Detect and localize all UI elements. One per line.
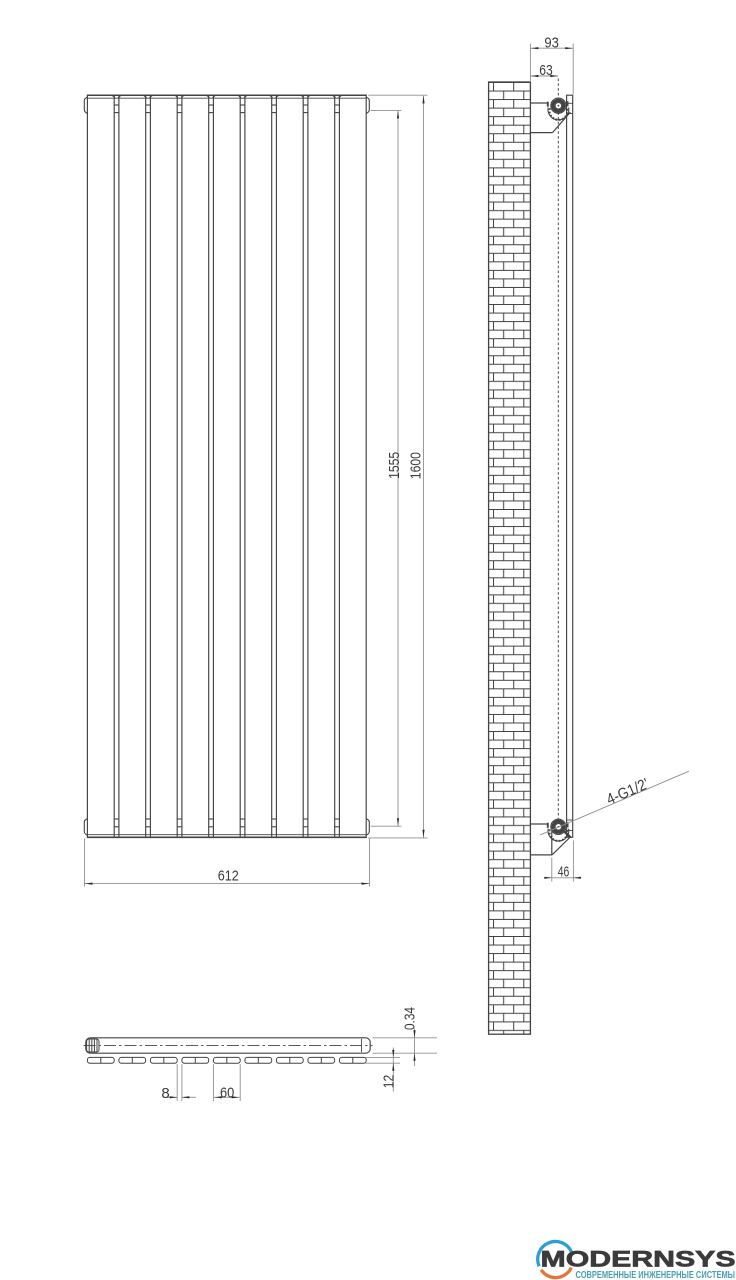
svg-text:0.34: 0.34 xyxy=(402,1007,418,1030)
svg-text:8: 8 xyxy=(161,1085,169,1102)
svg-text:60: 60 xyxy=(220,1085,234,1102)
svg-text:93: 93 xyxy=(544,35,559,52)
svg-text:1600: 1600 xyxy=(408,452,425,479)
svg-text:MODERNSYS: MODERNSYS xyxy=(541,1247,736,1272)
svg-text:46: 46 xyxy=(558,864,570,881)
svg-text:1555: 1555 xyxy=(386,452,403,479)
svg-text:12: 12 xyxy=(381,1075,398,1089)
svg-text:СОВРЕМЕННЫЕ ИНЖЕНЕРНЫЕ СИСТЕМЫ: СОВРЕМЕННЫЕ ИНЖЕНЕРНЫЕ СИСТЕМЫ xyxy=(576,1270,736,1280)
svg-text:63: 63 xyxy=(539,62,553,79)
svg-text:612: 612 xyxy=(218,867,239,884)
